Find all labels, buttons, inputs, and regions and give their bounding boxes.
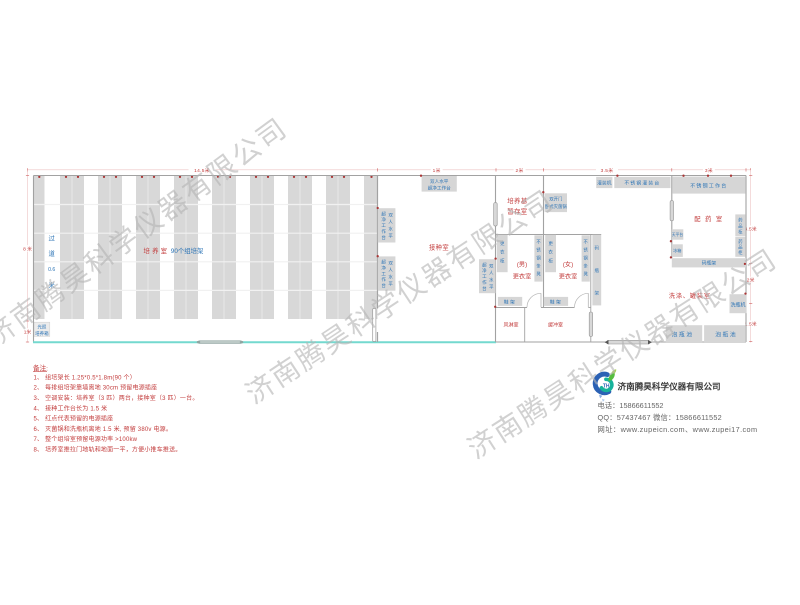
svg-text:洗瓶机: 洗瓶机	[730, 302, 745, 309]
svg-text:过: 过	[49, 233, 56, 242]
svg-text:双人水平: 双人水平	[388, 213, 393, 240]
svg-text:5、 红点代表预留的电源插座: 5、 红点代表预留的电源插座	[34, 415, 114, 423]
svg-text:6、 灭菌锅和洗瓶机离地 1.5 米, 预留 380v 电源: 6、 灭菌锅和洗瓶机离地 1.5 米, 预留 380v 电源。	[34, 425, 173, 433]
svg-text:药品柜: 药品柜	[738, 238, 743, 256]
svg-text:3米: 3米	[705, 167, 713, 174]
svg-text:超净工作台: 超净工作台	[482, 261, 487, 292]
svg-text:泡瓶池: 泡瓶池	[715, 330, 737, 338]
svg-text:灌装机: 灌装机	[597, 179, 612, 186]
svg-text:道: 道	[49, 249, 56, 258]
svg-text:培养箱: 培养箱	[35, 330, 49, 337]
svg-text:8 米: 8 米	[23, 246, 32, 253]
svg-text:3.5米: 3.5米	[601, 167, 614, 174]
svg-text:更衣柜: 更衣柜	[548, 241, 553, 264]
svg-text:更衣室: 更衣室	[513, 273, 532, 281]
svg-text:更衣室: 更衣室	[559, 273, 578, 281]
svg-text:双人水平: 双人水平	[489, 264, 494, 291]
svg-text:缓冲室: 缓冲室	[548, 321, 563, 328]
svg-text:天平台: 天平台	[672, 232, 684, 237]
svg-text:8、 培养室推拉门地轨和地面一平，方便小推车推送。: 8、 培养室推拉门地轨和地面一平，方便小推车推送。	[34, 446, 182, 454]
svg-text:网址：www.zupeicn.com、www.zupei17: 网址：www.zupeicn.com、www.zupei17.com	[598, 425, 758, 434]
svg-text:0.6: 0.6	[48, 267, 55, 273]
svg-text:(男): (男)	[517, 261, 527, 268]
svg-text:双人水平: 双人水平	[430, 178, 449, 185]
svg-text:电话：15866611552: 电话：15866611552	[598, 401, 664, 410]
svg-text:3、 空调安装：培养室（3 匹）两台，接种室（3 匹）一台。: 3、 空调安装：培养室（3 匹）两台，接种室（3 匹）一台。	[34, 394, 199, 402]
svg-text:TH: TH	[603, 384, 610, 390]
svg-text:鞋架: 鞋架	[550, 299, 563, 306]
svg-text:2、 每排组培架靠墙离地 30cm 预留电源插座: 2、 每排组培架靠墙离地 30cm 预留电源插座	[34, 384, 158, 392]
svg-text:冰箱: 冰箱	[673, 247, 681, 254]
svg-text:风淋室: 风淋室	[503, 321, 518, 328]
svg-text:光照: 光照	[37, 324, 46, 331]
svg-text:码瓶架: 码瓶架	[702, 259, 717, 266]
svg-text:1、 组培架长 1.25*0.5*1.8m(90 个）: 1、 组培架长 1.25*0.5*1.8m(90 个）	[34, 373, 136, 381]
svg-text:7、 整个组培室预留电源功率 >100kw: 7、 整个组培室预留电源功率 >100kw	[34, 435, 138, 443]
svg-text:(女): (女)	[563, 260, 573, 268]
svg-text:4、 接种工作台长为 1.5 米: 4、 接种工作台长为 1.5 米	[34, 404, 108, 412]
svg-text:鞋架: 鞋架	[504, 299, 517, 306]
svg-text:备注:: 备注:	[33, 363, 48, 372]
svg-text:2米: 2米	[516, 167, 524, 174]
svg-text:培养室90个组培架: 培养室90个组培架	[144, 246, 205, 255]
svg-text:济南腾昊科学仪器有限公司: 济南腾昊科学仪器有限公司	[618, 381, 721, 392]
svg-text:药品柜: 药品柜	[738, 217, 743, 236]
svg-text:超净工作台: 超净工作台	[381, 210, 386, 241]
svg-text:不锈钢灌装台: 不锈钢灌装台	[624, 179, 660, 186]
svg-text:超净工作台: 超净工作台	[381, 259, 386, 290]
svg-text:超净工作台: 超净工作台	[428, 185, 451, 192]
svg-text:配药室: 配药室	[694, 214, 726, 223]
svg-text:QQ：57437467 微信：15866611552: QQ：57437467 微信：15866611552	[598, 413, 722, 422]
svg-text:不锈钢工作台: 不锈钢工作台	[690, 183, 727, 190]
svg-text:1米: 1米	[433, 167, 441, 174]
